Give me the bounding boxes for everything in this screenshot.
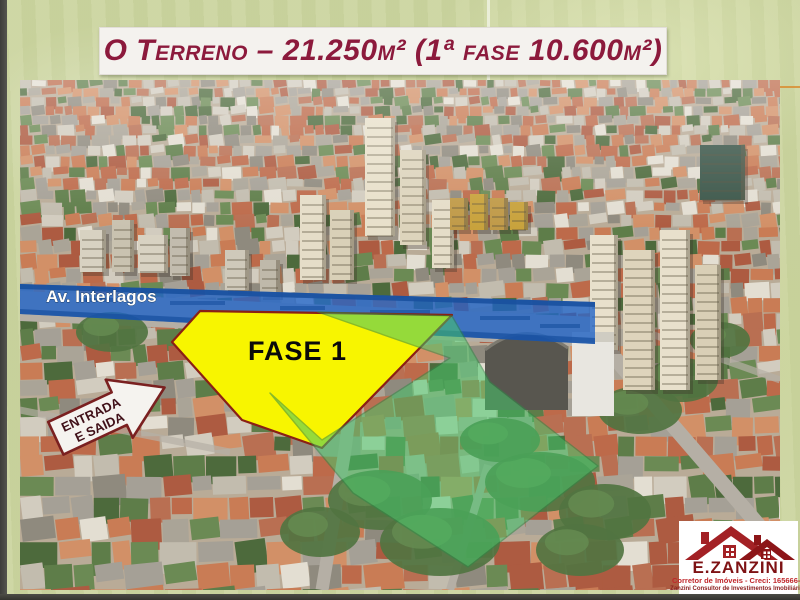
slide-bottom-edge <box>0 594 800 600</box>
logo-tagline: Zanzini Consultor de Investimentos Imobi… <box>670 585 800 593</box>
phase1-label: FASE 1 <box>248 336 347 366</box>
photo-haze <box>20 80 780 230</box>
logo-registration: Corretor de Imóveis - Creci: 165666-F <box>672 576 800 585</box>
slide: O Terreno – 21.250m² (1ª fase 10.600m²) <box>0 0 800 600</box>
house-roof-icon <box>681 523 796 561</box>
title-banner: O Terreno – 21.250m² (1ª fase 10.600m²) <box>99 27 667 75</box>
aerial-photo: Av. Interlagos FASE 1 ENTRADA E SAIDA <box>20 80 780 590</box>
logo-name: E.ZANZINI <box>692 559 784 576</box>
slide-left-edge <box>0 0 7 600</box>
broker-logo: E.ZANZINI Corretor de Imóveis - Creci: 1… <box>679 521 798 596</box>
aerial-photo-canvas: Av. Interlagos FASE 1 ENTRADA E SAIDA <box>20 80 780 590</box>
avenue-label: Av. Interlagos <box>46 287 157 306</box>
page-title: O Terreno – 21.250m² (1ª fase 10.600m²) <box>104 34 663 68</box>
